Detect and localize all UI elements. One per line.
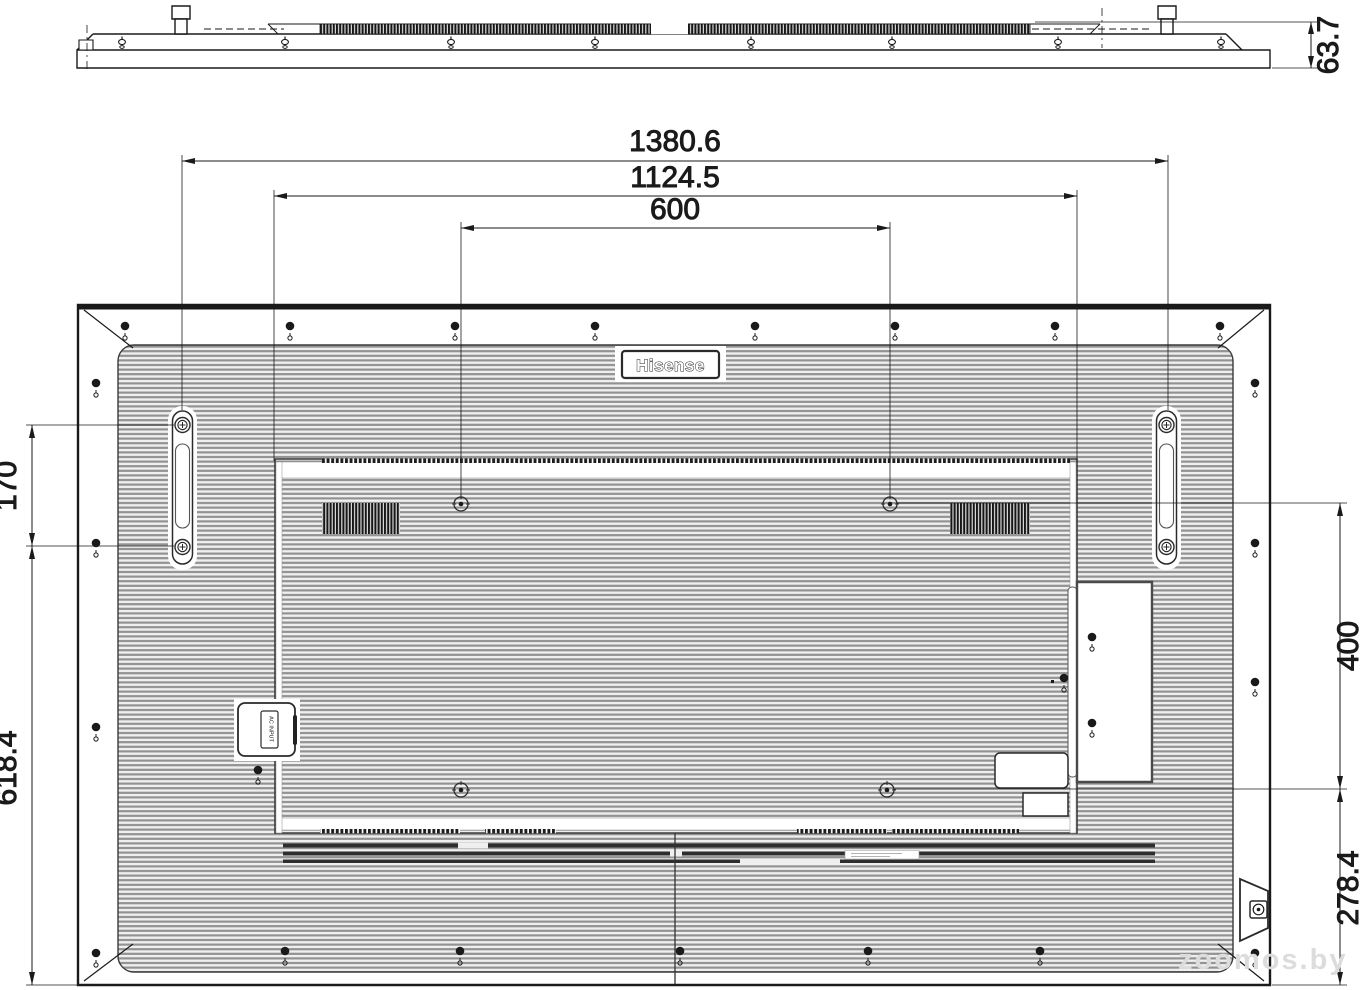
profile-left-cap xyxy=(79,40,93,50)
dim-lower-height: 618.4 xyxy=(0,730,23,805)
profile-right-post xyxy=(1158,6,1176,34)
dim-vesa-width: 600 xyxy=(650,193,700,226)
recess-bottom-rail xyxy=(277,818,1076,830)
profile-screws xyxy=(119,37,1225,49)
module-cover xyxy=(1068,582,1152,782)
dim-mount-area-width: 1124.5 xyxy=(630,161,720,194)
profile-slab xyxy=(77,50,1270,68)
technical-drawing-canvas: Hisense AC INPUT xyxy=(0,0,1367,990)
dim-overall-width: 1380.6 xyxy=(629,125,721,158)
rating-label xyxy=(845,851,919,860)
dim-vesa-height: 400 xyxy=(1332,621,1365,671)
cover-plate-large xyxy=(995,753,1068,788)
ac-input-port: AC INPUT xyxy=(234,699,300,761)
hisense-logo: Hisense xyxy=(615,346,726,382)
profile-left-post xyxy=(172,6,190,34)
ac-input-label: AC INPUT xyxy=(268,716,274,742)
vent-grille-left xyxy=(322,503,400,534)
recess-top-vent-dots xyxy=(322,459,1070,464)
right-handle xyxy=(1152,406,1181,570)
hisense-logo-text: Hisense xyxy=(636,356,705,375)
dim-depth: 63.7 xyxy=(1312,16,1345,74)
rear-view: Hisense AC INPUT xyxy=(78,305,1270,985)
cover-plate-small xyxy=(1023,793,1068,816)
dim-bottom-offset: 278.4 xyxy=(1332,850,1365,925)
top-profile-view xyxy=(77,6,1270,72)
display-dimension-drawing: Hisense AC INPUT xyxy=(0,0,1367,990)
left-handle xyxy=(168,406,197,570)
panel-top-edge xyxy=(78,305,1270,310)
vent-grille-right xyxy=(950,503,1030,534)
recess-top-rail xyxy=(277,462,1076,478)
dim-handle-span: 170 xyxy=(0,461,23,511)
